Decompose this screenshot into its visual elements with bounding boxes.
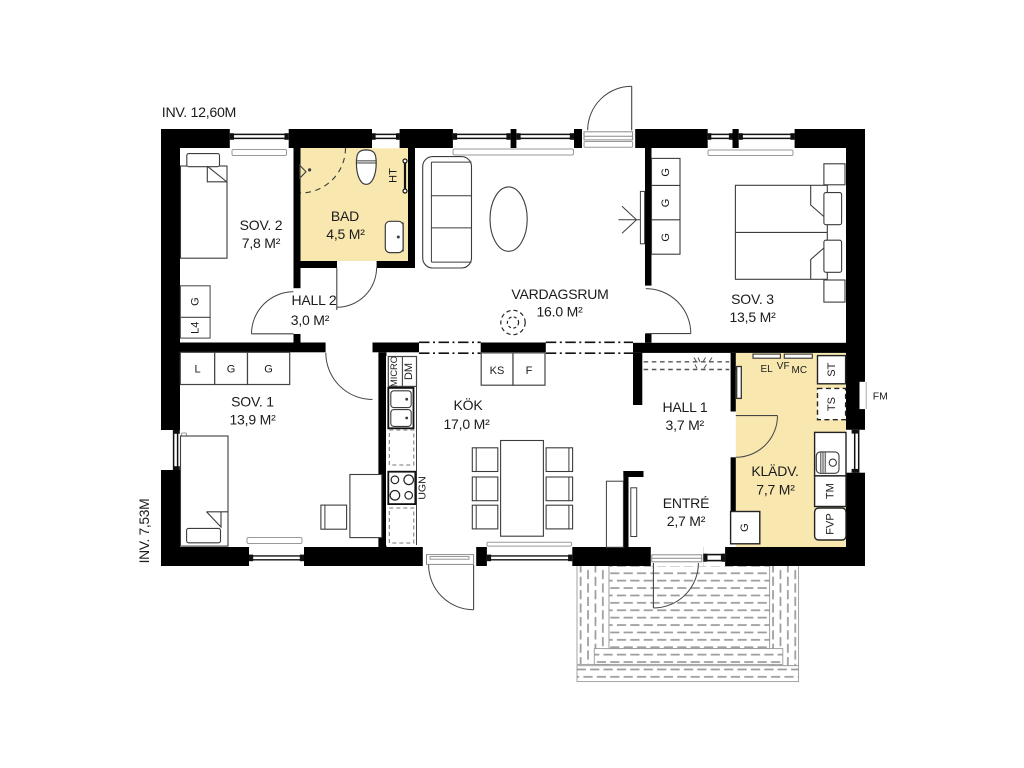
svg-text:G: G bbox=[660, 168, 672, 177]
svg-text:INV. 7,53M: INV. 7,53M bbox=[137, 499, 152, 564]
svg-text:ENTRÉ: ENTRÉ bbox=[663, 495, 709, 511]
svg-text:MICRO: MICRO bbox=[389, 356, 399, 387]
svg-text:13,5 M²: 13,5 M² bbox=[729, 309, 776, 325]
svg-text:SOV. 2: SOV. 2 bbox=[240, 217, 283, 233]
svg-text:KÖK: KÖK bbox=[454, 396, 484, 413]
svg-text:G: G bbox=[660, 199, 672, 208]
svg-text:G: G bbox=[660, 233, 672, 242]
svg-text:FM: FM bbox=[873, 390, 888, 402]
svg-text:L: L bbox=[194, 364, 200, 376]
svg-text:VF: VF bbox=[777, 361, 790, 372]
svg-text:INV. 12,60M: INV. 12,60M bbox=[162, 105, 236, 121]
svg-text:DM: DM bbox=[403, 363, 415, 380]
svg-text:HALL 2: HALL 2 bbox=[292, 292, 337, 308]
svg-text:MC: MC bbox=[792, 365, 808, 376]
svg-text:3,0 M²: 3,0 M² bbox=[291, 312, 330, 328]
svg-text:7,7 M²: 7,7 M² bbox=[756, 482, 795, 498]
svg-text:ST: ST bbox=[826, 362, 838, 376]
svg-text:SOV. 3: SOV. 3 bbox=[731, 291, 774, 307]
svg-text:L4: L4 bbox=[190, 322, 202, 334]
svg-text:EL: EL bbox=[761, 364, 774, 375]
svg-text:BAD: BAD bbox=[331, 208, 359, 224]
svg-text:KLÄDV.: KLÄDV. bbox=[751, 463, 798, 479]
svg-text:FVP: FVP bbox=[825, 513, 837, 534]
svg-text:16.0 M²: 16.0 M² bbox=[536, 304, 583, 320]
svg-text:F: F bbox=[526, 365, 533, 377]
svg-text:3,7 M²: 3,7 M² bbox=[666, 417, 705, 433]
svg-text:VARDAGSRUM: VARDAGSRUM bbox=[511, 286, 608, 302]
svg-text:TS: TS bbox=[826, 397, 838, 411]
svg-text:SOV. 1: SOV. 1 bbox=[231, 394, 274, 410]
svg-text:G: G bbox=[190, 297, 202, 306]
svg-text:G: G bbox=[227, 364, 236, 376]
svg-text:13,9 M²: 13,9 M² bbox=[229, 412, 276, 428]
svg-text:HT: HT bbox=[388, 168, 400, 183]
svg-text:4,5 M²: 4,5 M² bbox=[326, 226, 365, 242]
svg-text:G: G bbox=[739, 523, 751, 532]
svg-text:HALL 1: HALL 1 bbox=[663, 399, 708, 415]
svg-text:17,0 M²: 17,0 M² bbox=[443, 416, 490, 432]
svg-text:2,7 M²: 2,7 M² bbox=[667, 513, 706, 529]
svg-text:7,8 M²: 7,8 M² bbox=[242, 235, 281, 251]
svg-text:TM: TM bbox=[825, 483, 837, 499]
svg-text:UGN: UGN bbox=[416, 476, 428, 499]
svg-text:G: G bbox=[264, 364, 273, 376]
svg-text:KS: KS bbox=[490, 365, 505, 377]
